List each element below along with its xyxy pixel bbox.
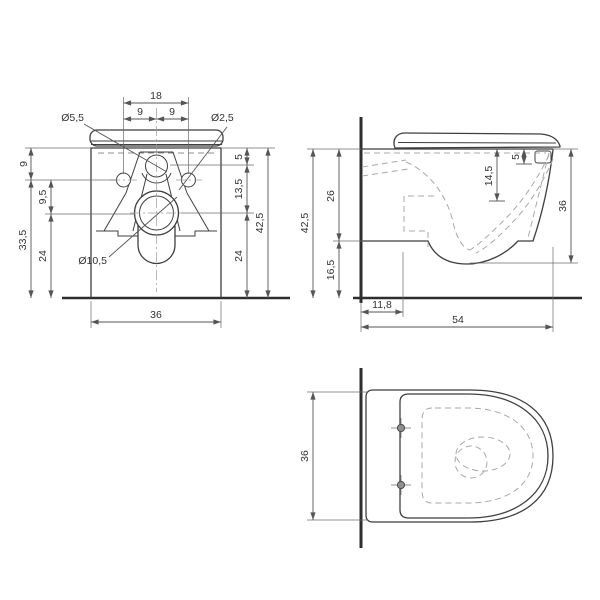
dim-rim-to-inlet-depth: 14,5 [483, 166, 495, 187]
dim-wall-to-step: 11,8 [372, 299, 392, 311]
dim-front-total-width: 36 [150, 309, 162, 321]
dim-hinge-hole-depth: 5 [510, 154, 522, 160]
dim-drain-to-bottom-left: 24 [37, 250, 49, 262]
dim-hole-spacing-total: 18 [150, 90, 162, 102]
dim-side-holes-to-drain: 9,5 [37, 190, 49, 205]
dim-underside-to-floor: 16,5 [325, 260, 337, 281]
dim-drain-diameter: Ø10,5 [78, 255, 107, 267]
front-view: 18 9 9 Ø5,5 Ø2,5 9 9,5 33,5 24 5 13,5 24… [17, 90, 290, 328]
dim-hole-spacing-left: 9 [137, 106, 143, 118]
dim-top-to-side-holes: 9 [18, 161, 30, 167]
side-view: 42,5 26 16,5 14,5 5 36 11,8 54 [299, 117, 582, 332]
dim-hole-spacing-right: 9 [169, 106, 175, 118]
dim-top-to-inlet: 5 [233, 154, 245, 160]
side-hidden-lines [362, 153, 553, 253]
dim-rim-to-bowl-bottom: 36 [557, 200, 569, 212]
dim-side-hole-diameter: Ø2,5 [211, 112, 234, 124]
side-seat [394, 133, 560, 148]
top-view: 36 [299, 368, 553, 548]
side-dimension-lines [313, 149, 571, 327]
dim-front-total-height: 42,5 [254, 213, 266, 234]
side-dimension-labels: 42,5 26 16,5 14,5 5 36 11,8 54 [299, 154, 569, 326]
dim-side-total-height: 42,5 [299, 213, 311, 234]
top-extension-lines [307, 392, 368, 520]
dim-drain-to-bottom-right: 24 [233, 250, 245, 262]
drawing-page: 18 9 9 Ø5,5 Ø2,5 9 9,5 33,5 24 5 13,5 24… [0, 0, 600, 600]
dim-inlet-diameter: Ø5,5 [61, 112, 84, 124]
dim-rim-to-underside: 26 [325, 190, 337, 202]
dim-inlet-to-drain: 13,5 [233, 179, 245, 200]
technical-drawing-canvas: 18 9 9 Ø5,5 Ø2,5 9 9,5 33,5 24 5 13,5 24… [0, 0, 600, 600]
dim-side-holes-to-bottom: 33,5 [17, 230, 29, 251]
dim-total-depth: 54 [452, 314, 464, 326]
dim-top-total-width: 36 [299, 450, 311, 462]
